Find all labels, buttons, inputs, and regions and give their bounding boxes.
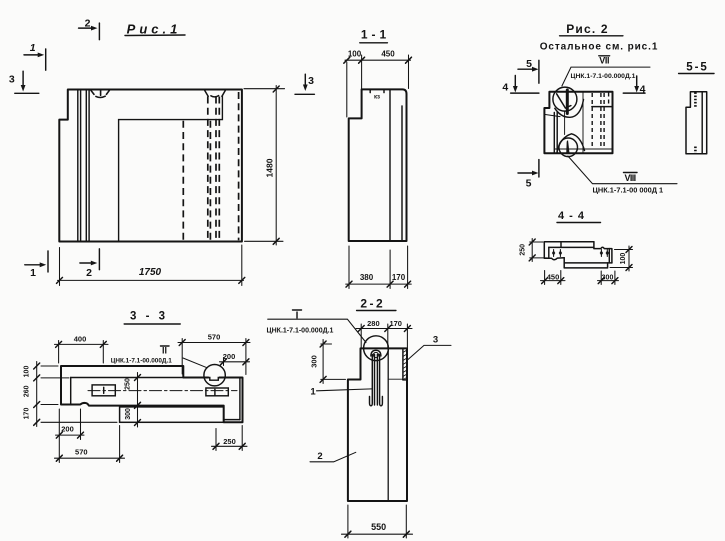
svg-text:170: 170 (389, 319, 402, 328)
svg-text:3: 3 (433, 334, 438, 345)
svg-text:260: 260 (24, 385, 31, 397)
svg-text:ЦНК.1-7.1-00.000Д.1: ЦНК.1-7.1-00.000Д.1 (571, 73, 636, 80)
svg-text:100: 100 (620, 253, 627, 265)
svg-text:ЦНК.1-7.1-00.000Д.1: ЦНК.1-7.1-00.000Д.1 (267, 328, 334, 335)
svg-text:400: 400 (74, 335, 87, 344)
svg-text:1: 1 (30, 42, 36, 54)
svg-text:I: I (296, 311, 299, 322)
svg-text:2: 2 (317, 451, 322, 462)
svg-text:1750: 1750 (139, 267, 162, 278)
svg-text:Рис. 2: Рис. 2 (566, 22, 609, 36)
svg-text:280: 280 (367, 319, 380, 328)
svg-text:550: 550 (371, 522, 386, 532)
svg-text:200: 200 (223, 352, 236, 361)
svg-text:1: 1 (30, 267, 36, 279)
svg-text:100: 100 (348, 50, 362, 59)
svg-text:3: 3 (308, 75, 314, 87)
svg-text:5: 5 (526, 178, 532, 190)
svg-text:380: 380 (360, 273, 374, 282)
svg-text:Остальное см. рис.1: Остальное см. рис.1 (540, 42, 659, 53)
svg-text:ЦНК.1-7.1-00 000Д 1: ЦНК.1-7.1-00 000Д 1 (593, 186, 664, 195)
svg-text:3: 3 (9, 74, 15, 86)
svg-text:450: 450 (547, 273, 560, 282)
svg-text:450: 450 (381, 50, 395, 59)
svg-text:300: 300 (602, 274, 614, 281)
svg-text:4 - 4: 4 - 4 (558, 210, 585, 222)
svg-text:5-5: 5-5 (686, 62, 709, 74)
svg-text:250: 250 (520, 244, 527, 256)
svg-text:VII: VII (599, 56, 609, 66)
svg-text:250: 250 (223, 437, 236, 446)
svg-text:300: 300 (125, 408, 132, 420)
svg-text:3 - 3: 3 - 3 (130, 311, 168, 323)
svg-text:570: 570 (208, 333, 221, 342)
svg-text:VIII: VIII (624, 173, 635, 183)
svg-text:250: 250 (125, 378, 132, 390)
svg-text:1480: 1480 (265, 158, 275, 177)
svg-text:кз: кз (374, 95, 380, 101)
svg-text:170: 170 (392, 273, 406, 282)
svg-text:ЦНК.1-7.1-00.000Д.1: ЦНК.1-7.1-00.000Д.1 (111, 358, 173, 365)
svg-text:2: 2 (86, 267, 92, 279)
svg-text:570: 570 (75, 448, 88, 457)
svg-text:2-2: 2-2 (360, 297, 385, 311)
svg-text:4: 4 (502, 82, 508, 94)
svg-text:170: 170 (24, 408, 31, 420)
svg-text:100: 100 (24, 366, 31, 378)
svg-text:II: II (162, 346, 167, 356)
svg-text:Рис.1: Рис.1 (127, 22, 182, 37)
svg-text:200: 200 (61, 425, 74, 434)
svg-text:300: 300 (310, 355, 319, 368)
svg-text:1: 1 (310, 387, 316, 398)
svg-text:5: 5 (526, 58, 532, 70)
svg-text:1-1: 1-1 (361, 28, 390, 42)
